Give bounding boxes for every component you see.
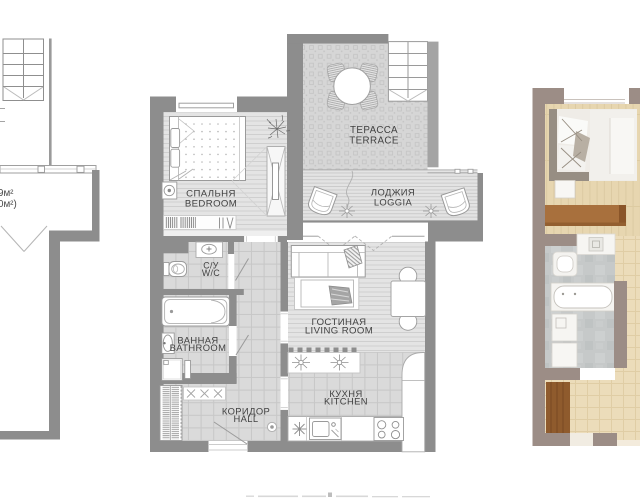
svg-text:0м²): 0м²) [0,199,17,210]
svg-text:9м²: 9м² [0,188,14,199]
svg-text:W/C: W/C [202,268,221,278]
svg-text:LOGGIA: LOGGIA [374,197,413,208]
svg-text:BATHROOM: BATHROOM [170,342,227,353]
svg-text:LIVING ROOM: LIVING ROOM [305,326,373,337]
svg-text:TERRACE: TERRACE [349,136,399,147]
svg-text:KITCHEN: KITCHEN [324,396,368,407]
svg-text:BEDROOM: BEDROOM [185,199,237,210]
svg-text:ТЕРАССА: ТЕРАССА [350,125,398,136]
svg-text:HALL: HALL [233,413,258,424]
